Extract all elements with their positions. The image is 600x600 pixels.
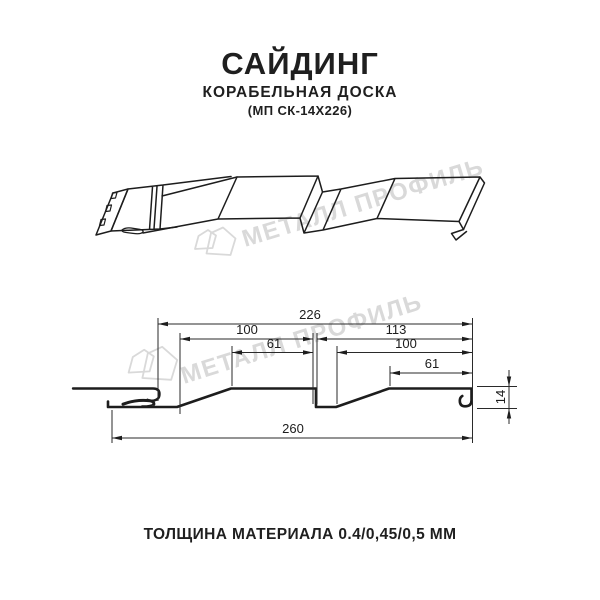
- dim-label-100-left: 100: [236, 322, 258, 337]
- panel-edge-hook-3d: [452, 230, 467, 241]
- product-card: { "header": { "title": "САЙДИНГ", "subti…: [0, 0, 600, 600]
- technical-drawing-canvas: МЕТАЛЛ ПРОФИЛЬ МЕТАЛЛ ПРОФИЛЬ: [0, 0, 600, 600]
- dim-label-113: 113: [386, 322, 407, 337]
- metal-profil-logo-icon: [129, 347, 178, 380]
- neighbor-panel-edge: [73, 389, 160, 401]
- dim-label-260: 260: [282, 421, 304, 436]
- lock-ridge: [111, 177, 237, 232]
- profile-outline: [108, 389, 472, 408]
- dim-label-61-left: 61: [267, 336, 281, 351]
- watermark-upper: МЕТАЛЛ ПРОФИЛЬ: [195, 153, 487, 255]
- cross-section: [73, 389, 472, 408]
- dim-label-226: 226: [299, 307, 321, 322]
- metal-profil-logo-icon: [195, 228, 236, 256]
- dim-label-61-right: 61: [425, 356, 439, 371]
- dim-label-14: 14: [493, 390, 508, 404]
- material-thickness-note: ТОЛЩИНА МАТЕРИАЛА 0.4/0,45/0,5 ММ: [0, 526, 600, 544]
- watermark-brand-text: МЕТАЛЛ ПРОФИЛЬ: [239, 153, 487, 252]
- dim-label-100-right: 100: [395, 336, 417, 351]
- lock-fold-detail: [123, 400, 154, 404]
